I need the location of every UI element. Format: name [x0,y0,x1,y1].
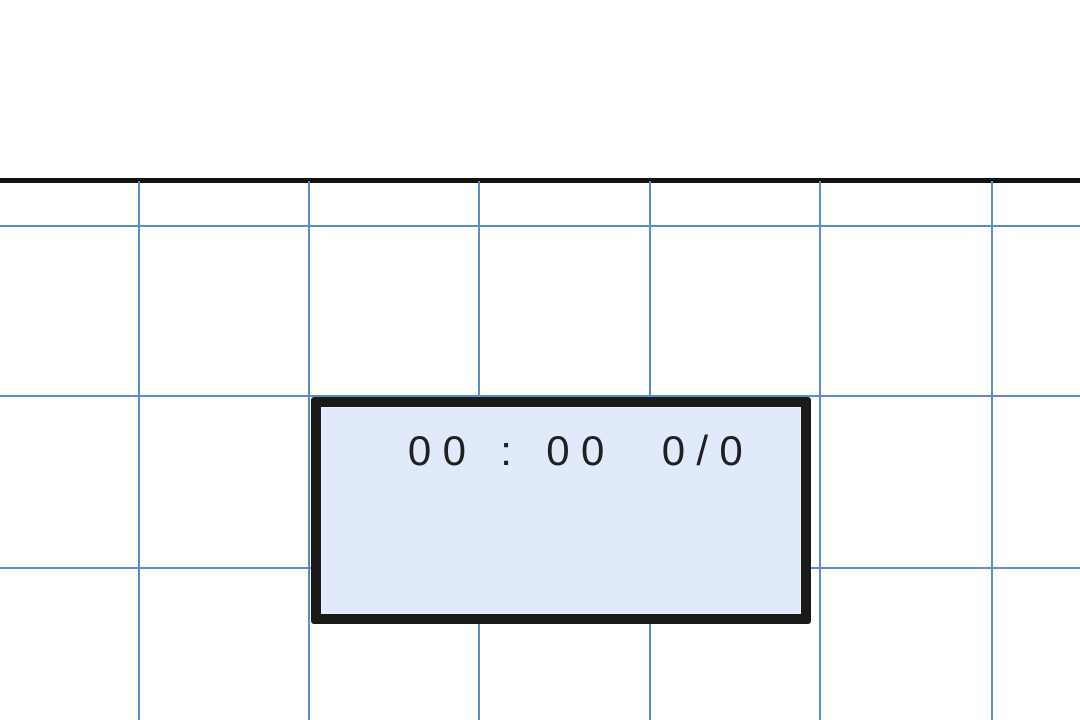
scoreboard-text: 00 : 00 0/0 [408,430,754,472]
scoreboard-display: 00 : 00 0/0 [311,397,811,624]
grid-line-vertical [138,181,140,720]
grid-line-horizontal [0,225,1080,227]
scene: 00 : 00 0/0 [0,0,1080,720]
grid-line-vertical [819,181,821,720]
grid-line-vertical [308,181,310,720]
grid-line-vertical [991,181,993,720]
